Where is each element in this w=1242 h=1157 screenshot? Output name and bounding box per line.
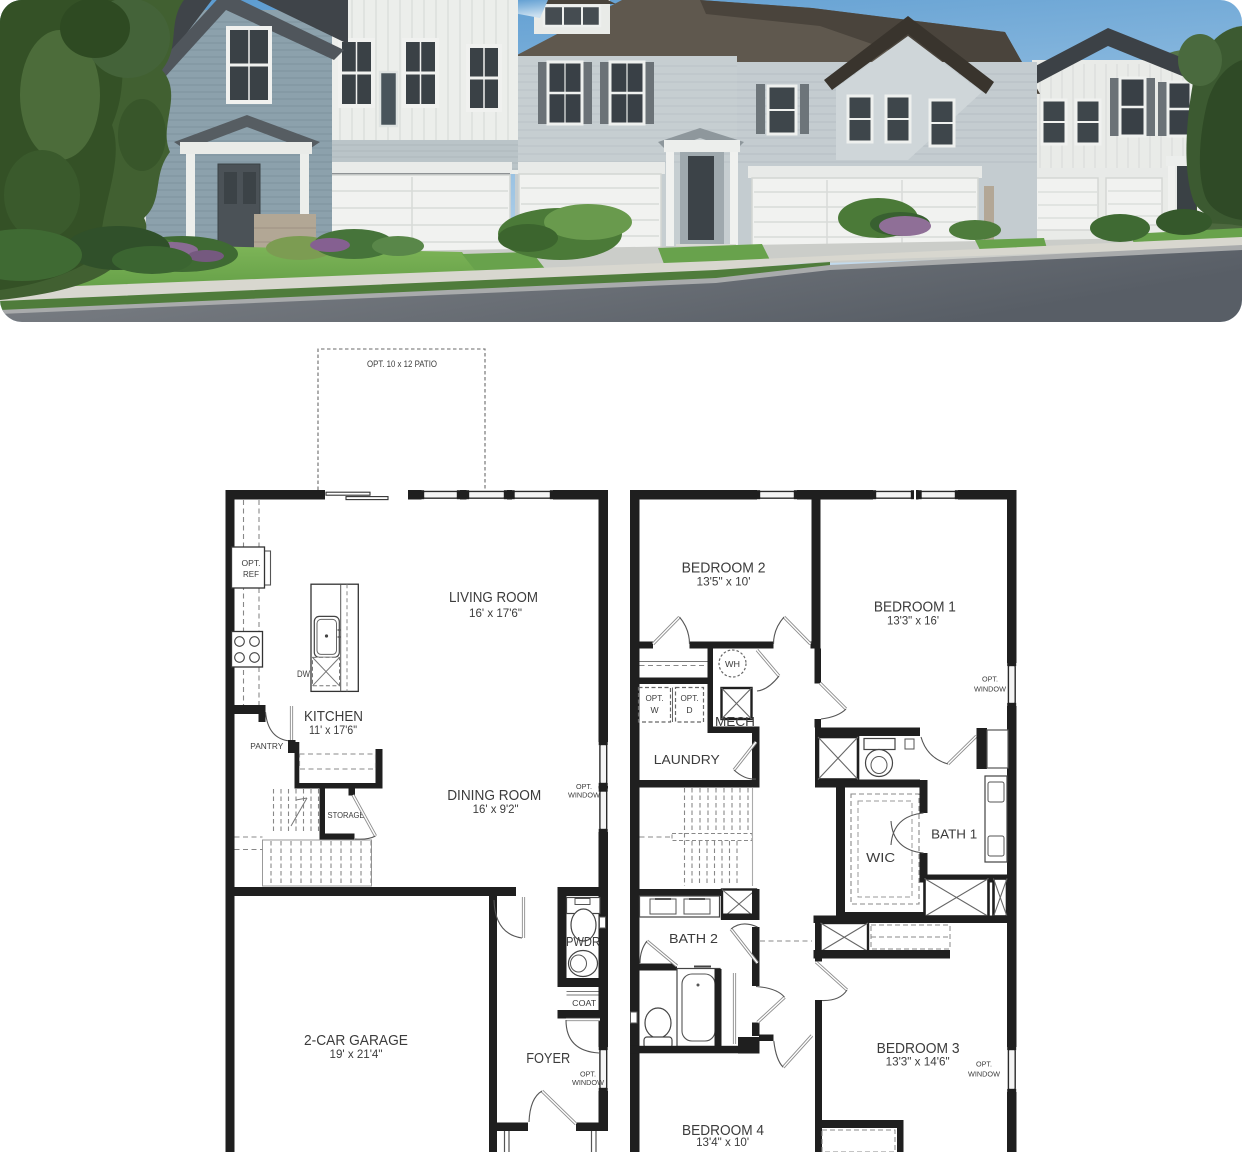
svg-text:PANTRY: PANTRY xyxy=(250,741,283,751)
svg-text:STORAGE: STORAGE xyxy=(328,810,365,820)
svg-text:13'3" x 14'6": 13'3" x 14'6" xyxy=(886,1055,950,1069)
svg-text:WINDOW: WINDOW xyxy=(572,1078,605,1087)
svg-text:LIVING ROOM: LIVING ROOM xyxy=(449,590,538,606)
svg-text:OPT.: OPT. xyxy=(982,675,998,684)
svg-text:WH: WH xyxy=(725,659,740,669)
svg-text:19' x 21'4": 19' x 21'4" xyxy=(330,1047,383,1061)
svg-text:OPT.: OPT. xyxy=(646,693,664,703)
svg-text:WINDOW: WINDOW xyxy=(974,685,1007,694)
svg-text:WIC: WIC xyxy=(866,850,896,865)
svg-text:BATH 2: BATH 2 xyxy=(669,931,718,946)
svg-text:FOYER: FOYER xyxy=(526,1051,570,1067)
svg-text:MECH: MECH xyxy=(715,714,755,729)
svg-text:OPT. 10 x 12 PATIO: OPT. 10 x 12 PATIO xyxy=(367,359,437,369)
svg-text:OPT.: OPT. xyxy=(681,693,699,703)
svg-text:OPT.: OPT. xyxy=(242,558,261,568)
svg-text:13'4" x 10': 13'4" x 10' xyxy=(696,1135,749,1149)
svg-text:13'5" x 10': 13'5" x 10' xyxy=(697,575,751,589)
svg-text:16' x 17'6": 16' x 17'6" xyxy=(469,606,522,620)
svg-text:D: D xyxy=(686,705,692,715)
svg-text:WINDOW: WINDOW xyxy=(968,1070,1001,1079)
svg-text:W: W xyxy=(650,705,659,715)
svg-text:PWDR: PWDR xyxy=(566,934,600,949)
svg-text:16' x 9'2": 16' x 9'2" xyxy=(473,802,519,816)
svg-text:11' x 17'6": 11' x 17'6" xyxy=(309,723,357,737)
svg-text:13'3" x 16': 13'3" x 16' xyxy=(887,614,939,628)
svg-text:BATH 1: BATH 1 xyxy=(931,827,977,842)
svg-text:LAUNDRY: LAUNDRY xyxy=(654,752,720,767)
svg-text:WINDOW: WINDOW xyxy=(568,791,601,800)
svg-text:DW: DW xyxy=(297,669,310,679)
svg-text:COAT: COAT xyxy=(572,998,597,1008)
svg-text:REF: REF xyxy=(243,569,259,579)
svg-text:OPT.: OPT. xyxy=(976,1060,992,1069)
